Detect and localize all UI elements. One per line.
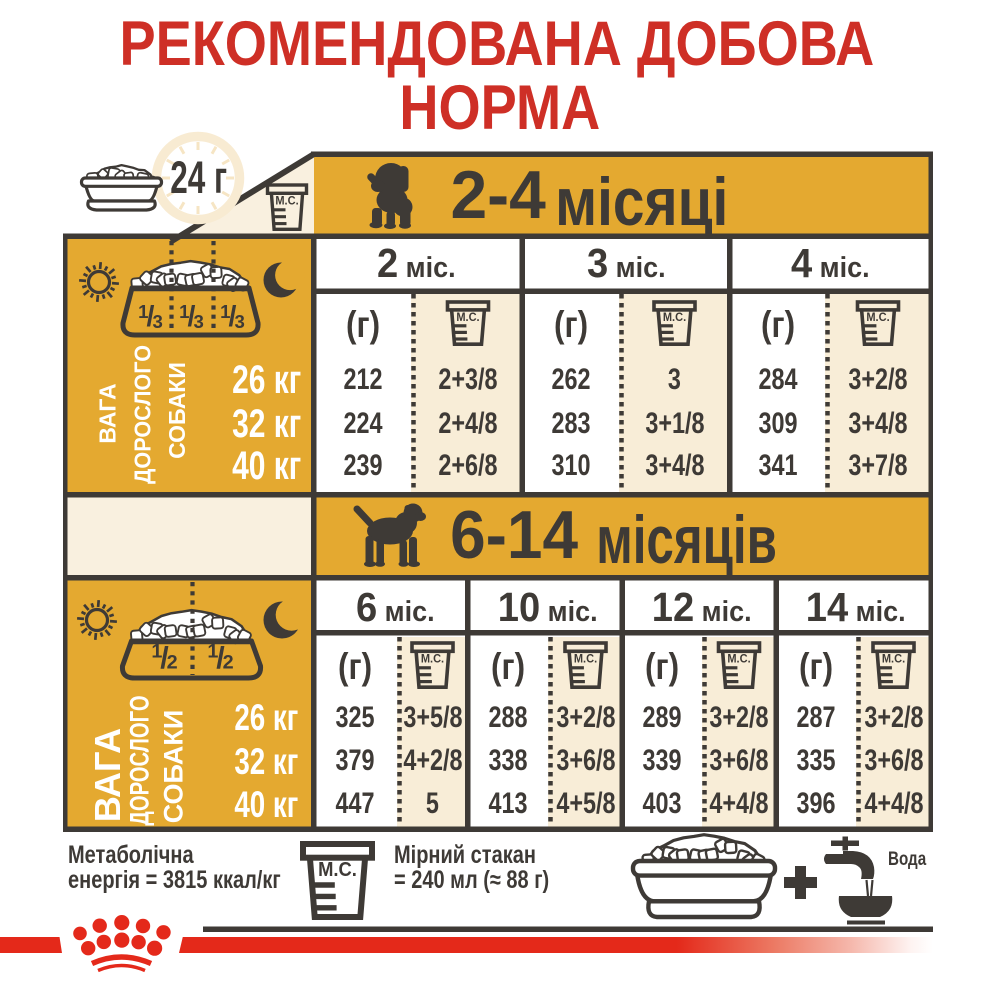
svg-text:М.С.: М.С.: [882, 653, 905, 665]
svg-text:М.С.: М.С.: [421, 653, 444, 665]
svg-text:М.С.: М.С.: [866, 312, 889, 324]
svg-text:М.С.: М.С.: [574, 653, 597, 665]
svg-text:М.С.: М.С.: [727, 653, 750, 665]
svg-text:М.С.: М.С.: [456, 312, 479, 324]
svg-text:М.С.: М.С.: [275, 195, 298, 207]
svg-text:М.С.: М.С.: [663, 312, 686, 324]
